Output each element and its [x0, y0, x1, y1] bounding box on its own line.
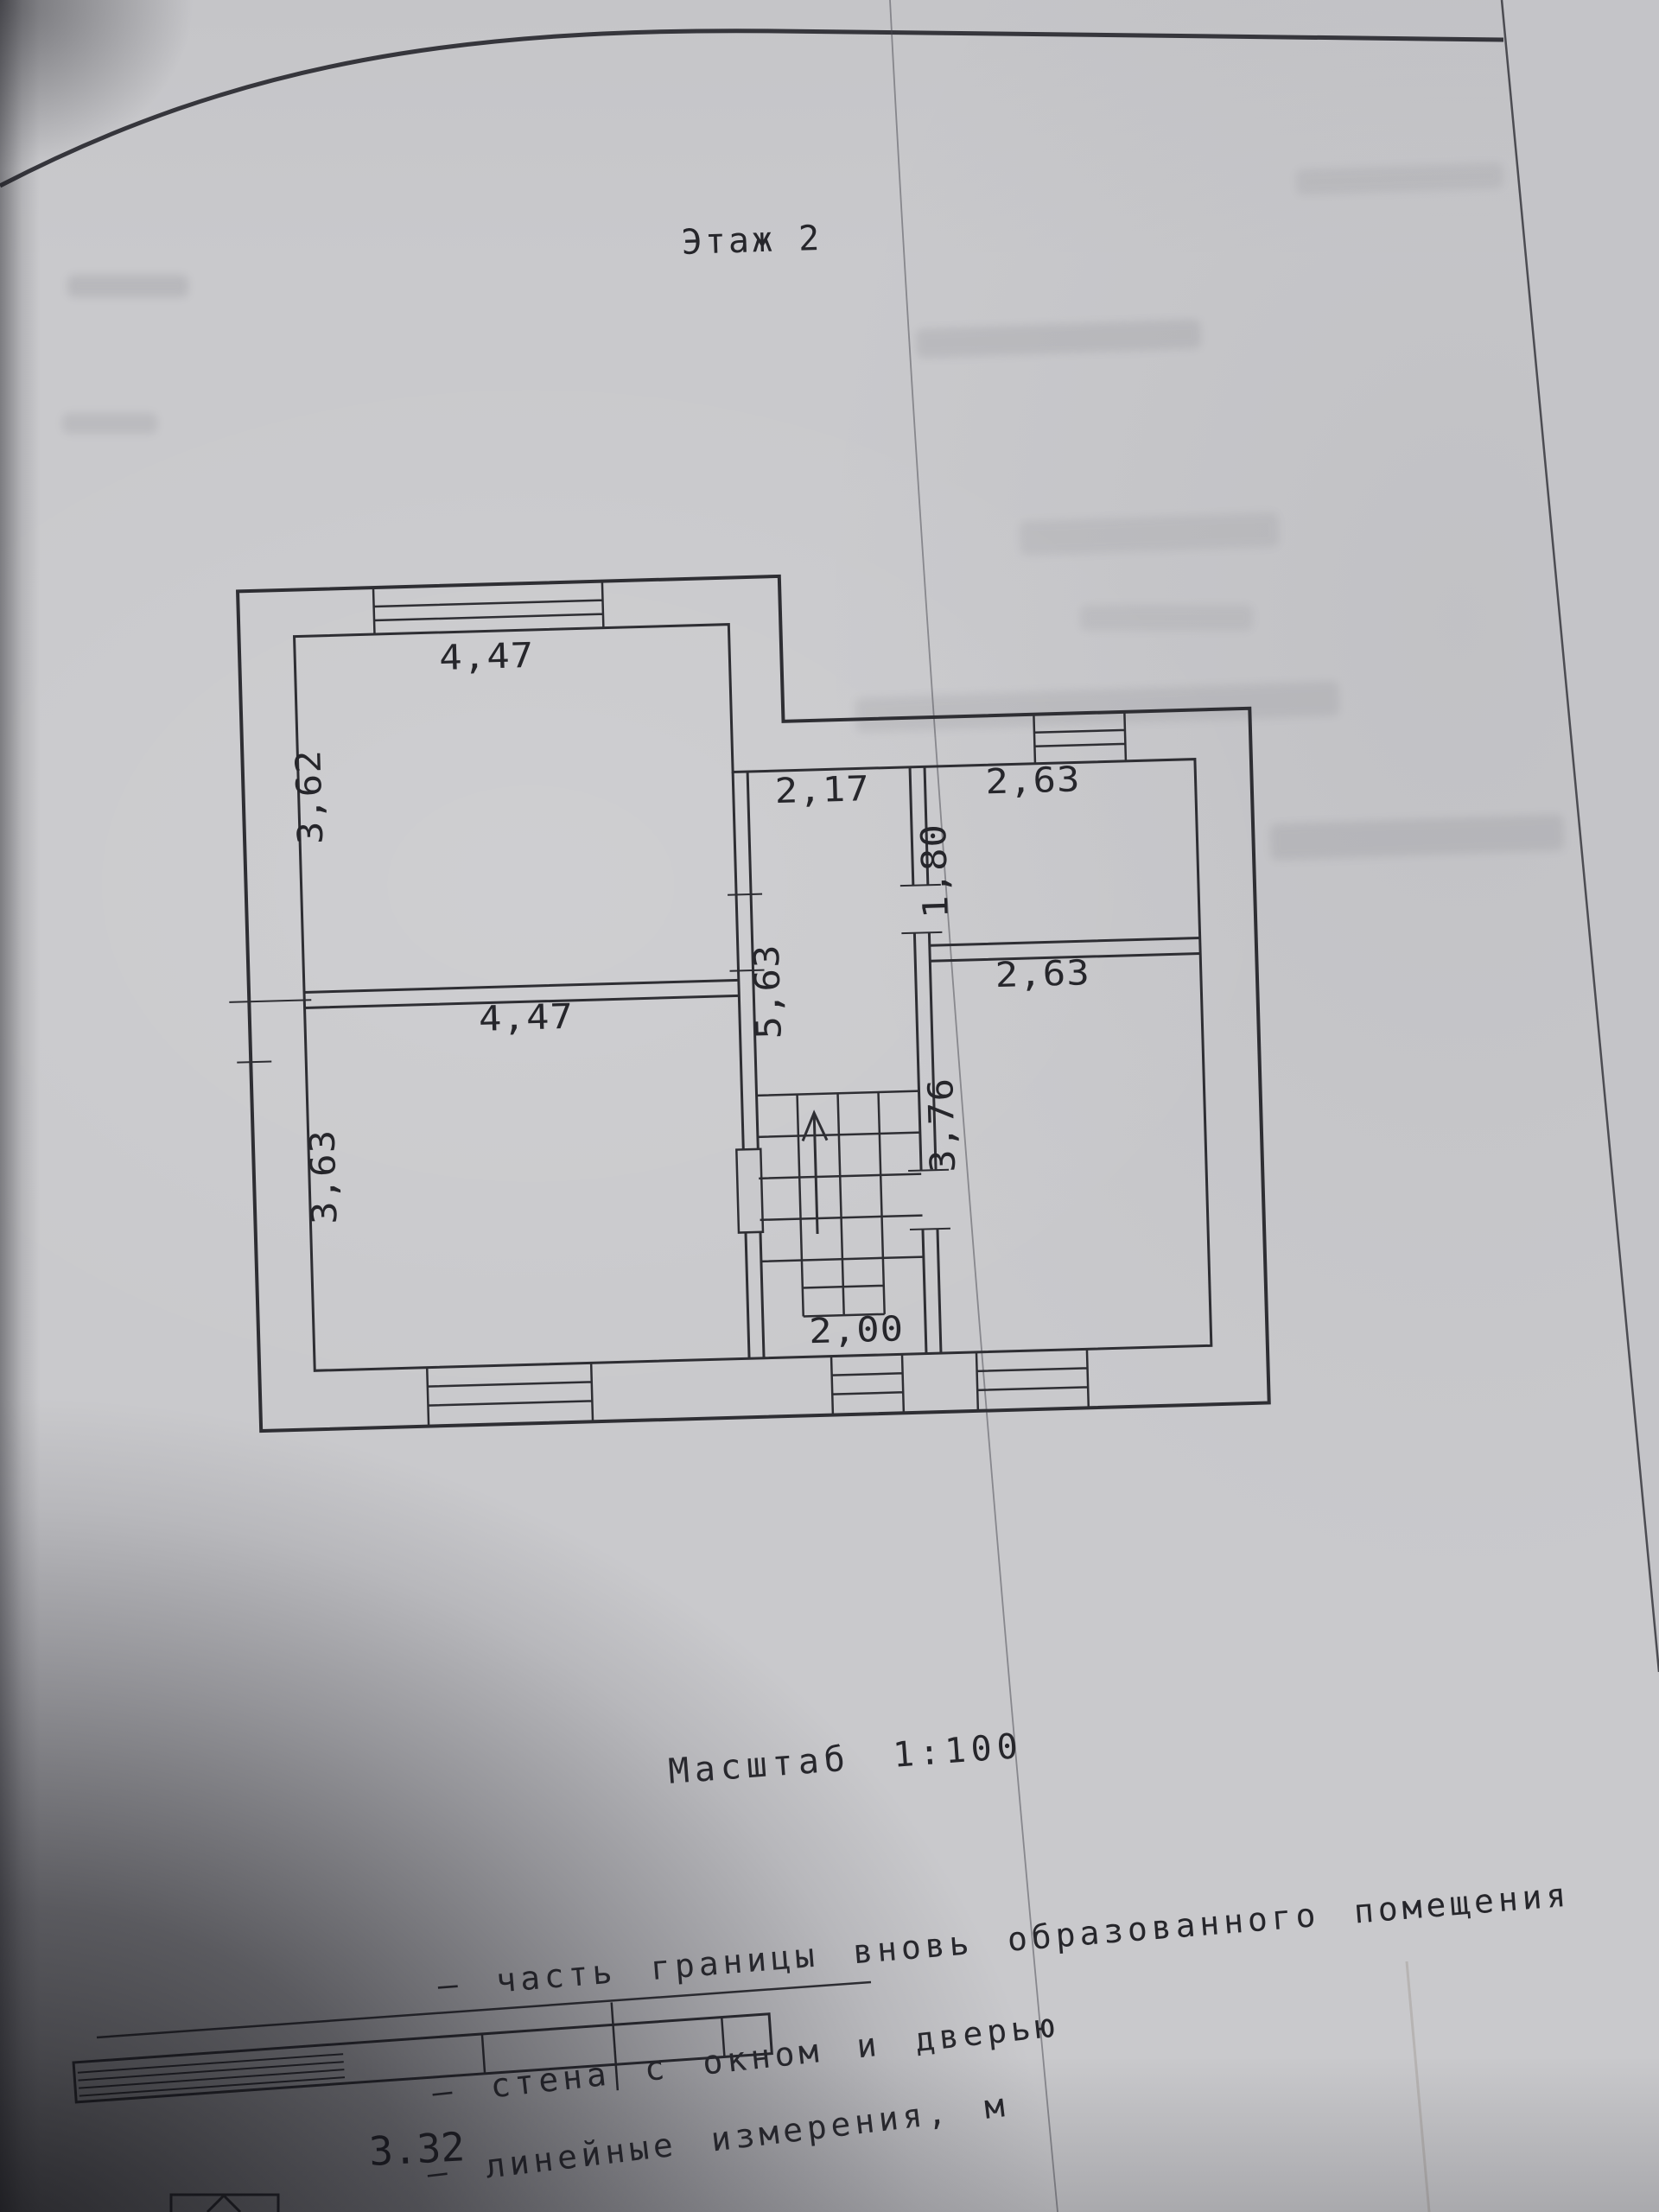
floor-plan: 4,47 3,62 2,17 5,63 2,63 1,80 4,47 3,63 … — [218, 563, 1269, 1432]
dim-room-bottom-right-depth: 3,76 — [921, 1077, 963, 1173]
dim-room-top-right-depth: 1,80 — [914, 823, 957, 918]
partition-hall-left — [733, 772, 764, 1358]
dimension-labels: 4,47 3,62 2,17 5,63 2,63 1,80 4,47 3,63 … — [286, 620, 1101, 1365]
dim-room-top-left-width: 4,47 — [439, 636, 535, 678]
arrow-fragment — [207, 2196, 240, 2212]
window-top-right — [1033, 712, 1126, 764]
dim-stairs-width: 2,00 — [809, 1309, 905, 1351]
dim-room-top-left-depth: 3,62 — [289, 749, 331, 845]
page-top-curved-line — [0, 31, 1503, 186]
door-leaf — [736, 1149, 763, 1233]
scanned-floor-plan-page: 4,47 3,62 2,17 5,63 2,63 1,80 4,47 3,63 … — [0, 0, 1659, 2212]
page-title: Этаж 2 — [681, 219, 823, 263]
window-bottom-left — [427, 1363, 593, 1426]
faint-streak — [1407, 1961, 1429, 2212]
dim-hall-depth: 5,63 — [747, 944, 790, 1039]
dim-hall-width: 2,17 — [774, 769, 870, 811]
dim-room-bottom-left-depth: 3,63 — [302, 1128, 345, 1224]
dim-room-bottom-left-width: 4,47 — [478, 997, 574, 1039]
stair-direction-arrow — [802, 1113, 829, 1235]
door-opening-ticks — [900, 885, 950, 1230]
window-top-left — [373, 582, 603, 634]
dim-room-top-right-width: 2,63 — [985, 760, 1081, 802]
page-crease-line — [890, 0, 1058, 2212]
window-bottom-right — [976, 1349, 1089, 1411]
stairs — [757, 1091, 925, 1318]
cutoff-drawing-fragment — [171, 2195, 278, 2212]
window-bottom-middle — [831, 1354, 904, 1414]
drawing-layer: 4,47 3,62 2,17 5,63 2,63 1,80 4,47 3,63 … — [0, 0, 1659, 2212]
dim-room-bottom-right-width: 2,63 — [995, 953, 1090, 995]
